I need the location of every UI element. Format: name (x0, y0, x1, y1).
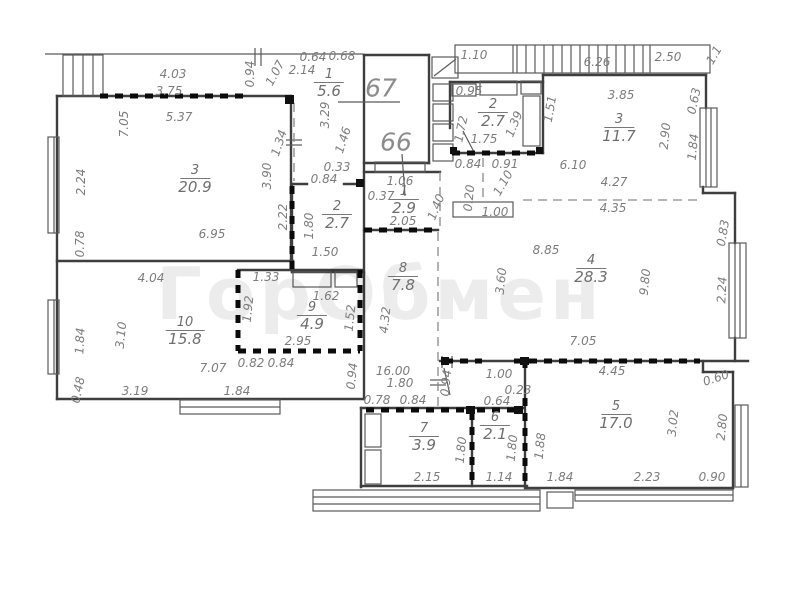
room-area: 17.0 (599, 415, 632, 432)
room-number: 4 (576, 254, 606, 269)
dimension-label: 1.00 (482, 206, 509, 218)
dimension-label: 3.85 (608, 89, 635, 101)
window-right-2 (729, 243, 746, 338)
dimension-label: 1.52 (343, 304, 358, 332)
room-area: 2.9 (392, 200, 416, 217)
room-area: 3.9 (412, 437, 436, 454)
dimension-label: 2.24 (715, 276, 728, 303)
dimension-label: 0.78 (364, 394, 391, 406)
dimension-label: 0.64 (300, 51, 327, 63)
dimension-label: 0.64 (484, 395, 511, 407)
window-right-1 (700, 108, 717, 187)
dimension-label: 0.94 (244, 61, 256, 88)
room-number: 8 (388, 262, 418, 277)
dimension-label: 8.85 (533, 244, 560, 256)
room-number: 2 (478, 98, 508, 113)
room-area: 5.6 (317, 83, 341, 100)
floorplan-drawing (0, 0, 800, 600)
dimension-label: 0.94 (345, 362, 360, 390)
room-label: 73.9 (409, 422, 439, 454)
dimension-label: 2.50 (655, 51, 682, 63)
room-number: 2 (322, 200, 352, 215)
dimension-label: 0.84 (311, 173, 338, 185)
room-number: 3 (180, 164, 210, 179)
room-area: 15.8 (168, 331, 201, 348)
dimension-label: 4.27 (601, 176, 628, 188)
dimension-label: 3.90 (261, 163, 273, 190)
dimension-label: 7.05 (118, 111, 130, 138)
room-area: 2.1 (483, 426, 507, 443)
dimension-label: 0.84 (400, 394, 427, 406)
room-area: 7.8 (391, 277, 415, 294)
room-area: 2.7 (325, 215, 349, 232)
dimension-label: 1.84 (547, 471, 574, 483)
dimension-label: 6.26 (584, 56, 611, 68)
room-label: 94.9 (297, 301, 327, 333)
dimension-label: 0.84 (268, 357, 295, 369)
dimension-label: 2.90 (658, 122, 673, 150)
dimension-label: 3.29 (319, 102, 331, 129)
apartment-number: 66 (380, 130, 412, 155)
room-label: 311.7 (602, 113, 635, 145)
dimension-label: 6.10 (560, 159, 587, 171)
dimension-label: 1.50 (312, 246, 339, 258)
dimension-label: 1.00 (486, 368, 513, 380)
dimension-label: 3.02 (666, 409, 681, 437)
dimension-label: 1.88 (533, 432, 548, 460)
dimension-label: 5.37 (166, 111, 193, 123)
dimension-label: 0.20 (462, 184, 477, 212)
dimension-label: 1.33 (253, 271, 280, 283)
room-label: 12.9 (389, 185, 419, 217)
room-label: 1015.8 (166, 316, 205, 348)
dimension-label: 4.45 (599, 365, 626, 377)
floorplan-page: ГорОбмен 4.033.755.377.052.240.786.953.9… (0, 0, 800, 600)
dimension-label: 4.32 (378, 306, 393, 334)
dimension-label: 7.07 (200, 362, 227, 374)
room-number: 7 (409, 422, 439, 437)
room-label: 62.1 (480, 411, 510, 443)
dimension-label: 1.84 (686, 133, 701, 161)
dimension-label: 0.68 (329, 50, 356, 62)
dimension-label: 1.10 (461, 49, 488, 61)
dimension-label: 4.35 (600, 202, 627, 214)
dimension-label: 1.80 (454, 436, 469, 464)
room-label: 320.9 (178, 164, 211, 196)
room-number: 1 (314, 68, 344, 83)
dimension-label: 2.15 (414, 471, 441, 483)
dimension-label: 2.95 (285, 335, 312, 347)
dimension-label: 0.90 (699, 471, 726, 483)
dimension-label: 1.84 (224, 385, 251, 397)
dimension-label: 4.03 (160, 68, 187, 80)
dimension-label: 7.05 (570, 335, 597, 347)
room-number: 5 (601, 400, 631, 415)
room-label: 428.3 (574, 254, 607, 286)
room-number: 9 (297, 301, 327, 316)
dimension-label: 0.84 (455, 158, 482, 170)
room-number: 6 (480, 411, 510, 426)
dimension-label: 3.19 (122, 385, 149, 397)
dimension-label: 2.24 (75, 169, 87, 196)
room-label: 517.0 (599, 400, 632, 432)
room-area: 2.7 (481, 113, 505, 130)
room-number: 10 (166, 316, 205, 331)
dimension-label: 3.60 (494, 267, 509, 295)
dimension-label: 1.14 (486, 471, 513, 483)
dimension-label: 9.80 (638, 268, 653, 296)
dimension-label: 2.80 (715, 413, 730, 441)
room-area: 11.7 (602, 128, 635, 145)
room-label: 22.7 (322, 200, 352, 232)
dimension-label: 0.82 (238, 357, 265, 369)
dimension-label: 3.75 (156, 85, 183, 97)
dimension-label: 2.23 (634, 471, 661, 483)
dimension-label: 2.14 (289, 64, 316, 76)
dimension-label: 0.78 (74, 231, 86, 258)
apartment-number: 67 (365, 76, 397, 101)
dimension-label: 0.95 (456, 85, 483, 97)
room-area: 28.3 (574, 269, 607, 286)
room-label: 87.8 (388, 262, 418, 294)
dimension-label: 0.94 (439, 369, 454, 397)
dimension-label: 4.04 (138, 272, 165, 284)
window-bottom-center (313, 490, 540, 511)
dimension-label: 1.75 (471, 133, 498, 145)
dimension-label: 1.80 (303, 213, 315, 240)
room-number: 3 (604, 113, 634, 128)
dimension-label: 1.84 (73, 327, 86, 354)
dimension-label: 1.80 (387, 377, 414, 389)
dimension-label: 3.10 (114, 321, 129, 349)
dimension-label: 6.95 (199, 228, 226, 240)
room-area: 20.9 (178, 179, 211, 196)
room-area: 4.9 (300, 316, 324, 333)
room-label: 22.7 (478, 98, 508, 130)
dimension-label: 2.22 (277, 204, 289, 231)
dimension-label: 1.92 (241, 295, 256, 323)
room-number: 1 (389, 185, 419, 200)
room-label: 15.6 (314, 68, 344, 100)
